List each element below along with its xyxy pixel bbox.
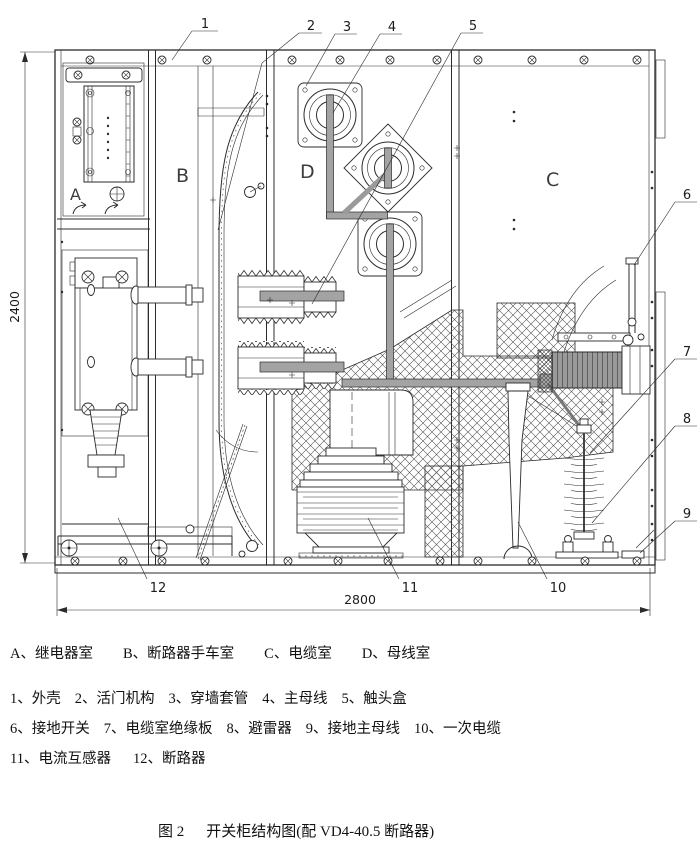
legend-item: 2、活门机构: [75, 687, 155, 708]
callout-12: 12: [150, 581, 167, 596]
legend-item: B、断路器手车室: [123, 642, 234, 663]
callout-9: 9: [683, 507, 691, 522]
legend-item: 7、电缆室绝缘板: [104, 717, 213, 738]
room-label-c: C: [546, 169, 559, 191]
room-label-a: A: [70, 185, 81, 204]
legend-item: 12、断路器: [133, 747, 206, 768]
legend-item: 10、一次电缆: [414, 717, 501, 738]
legend-rooms-row: A、继电器室 B、断路器手车室 C、电缆室 D、母线室: [10, 642, 700, 663]
spout-lower: [238, 341, 344, 395]
callout-4: 4: [388, 20, 396, 35]
legend-items-row-3: 11、电流互感器 12、断路器: [10, 747, 700, 768]
legend-item: C、电缆室: [264, 642, 332, 663]
callout-2: 2: [307, 19, 315, 34]
room-label-b: B: [176, 165, 189, 187]
figure-caption: 图 2 开关柜结构图(配 VD4-40.5 断路器): [0, 820, 700, 841]
legend-item: 9、接地主母线: [306, 717, 400, 738]
legend-item: 5、触头盒: [342, 687, 407, 708]
breaker-contact-arm-lower: [131, 357, 203, 377]
switchgear-structure-drawing: 2400 2800: [0, 0, 700, 632]
legend-item: 11、电流互感器: [10, 747, 111, 768]
legend-items-row-2: 6、接地开关 7、电缆室绝缘板 8、避雷器 9、接地主母线 10、一次电缆: [10, 717, 700, 738]
spout-upper: [238, 270, 344, 324]
callout-3: 3: [343, 20, 351, 35]
drawing-area: 2400 2800: [0, 0, 700, 632]
legend-items-row-1: 1、外壳 2、活门机构 3、穿墙套管 4、主母线 5、触头盒: [10, 687, 700, 708]
legend-item: 3、穿墙套管: [169, 687, 249, 708]
callout-6: 6: [683, 188, 691, 203]
callout-8: 8: [683, 412, 691, 427]
legend: A、继电器室 B、断路器手车室 C、电缆室 D、母线室 1、外壳 2、活门机构 …: [0, 632, 700, 768]
callout-5: 5: [469, 19, 477, 34]
legend-item: A、继电器室: [10, 642, 93, 663]
legend-item: 6、接地开关: [10, 717, 90, 738]
callout-7: 7: [683, 345, 691, 360]
legend-item: 1、外壳: [10, 687, 61, 708]
room-label-d: D: [300, 161, 315, 183]
figure-title: 开关柜结构图(配 VD4-40.5 断路器): [206, 820, 434, 841]
figure-number: 图 2: [158, 820, 184, 841]
callout-11: 11: [402, 581, 419, 596]
legend-item: D、母线室: [362, 642, 430, 663]
breaker-contact-arm-upper: [131, 285, 203, 305]
legend-item: 4、主母线: [262, 687, 327, 708]
callout-1: 1: [201, 17, 209, 32]
width-dimension: 2800: [344, 592, 376, 607]
callout-10: 10: [550, 581, 567, 596]
height-dimension: 2400: [7, 291, 22, 323]
legend-item: 8、避雷器: [227, 717, 292, 738]
